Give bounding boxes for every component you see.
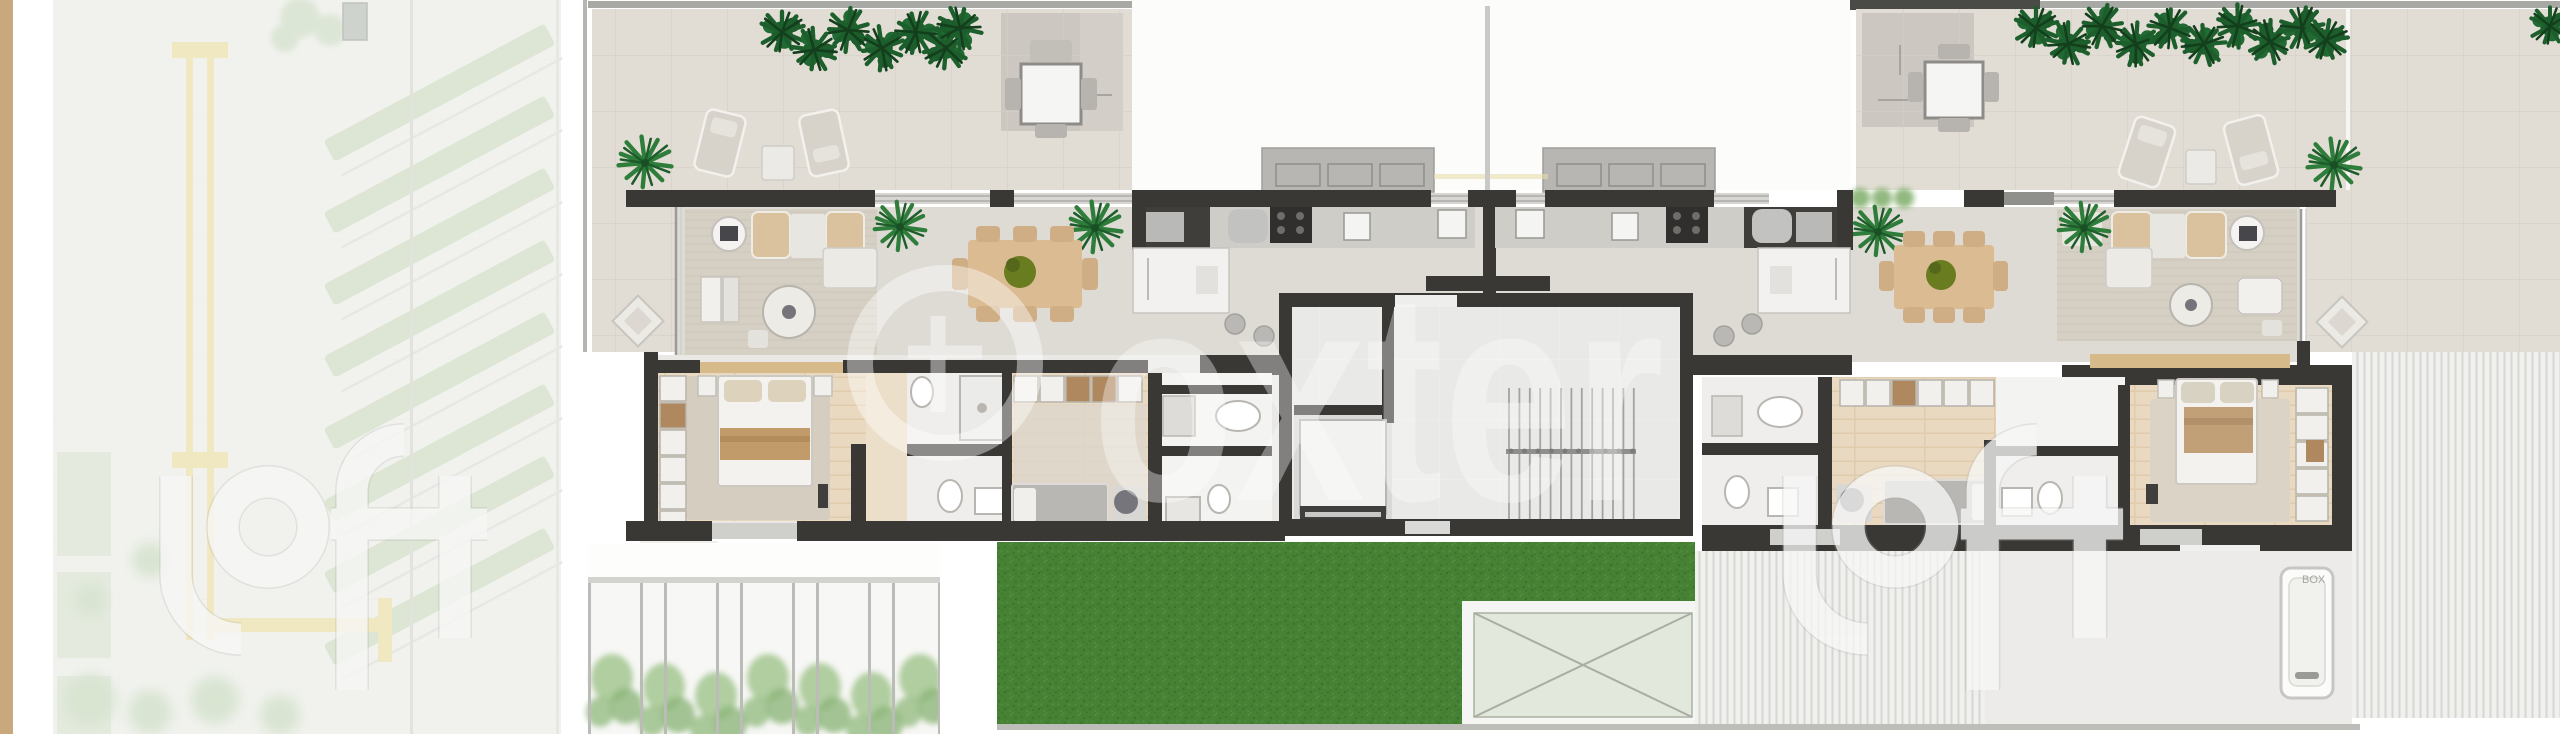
svg-text:BOX: BOX: [2302, 574, 2326, 586]
svg-text:oxter: oxter: [1092, 229, 1664, 565]
